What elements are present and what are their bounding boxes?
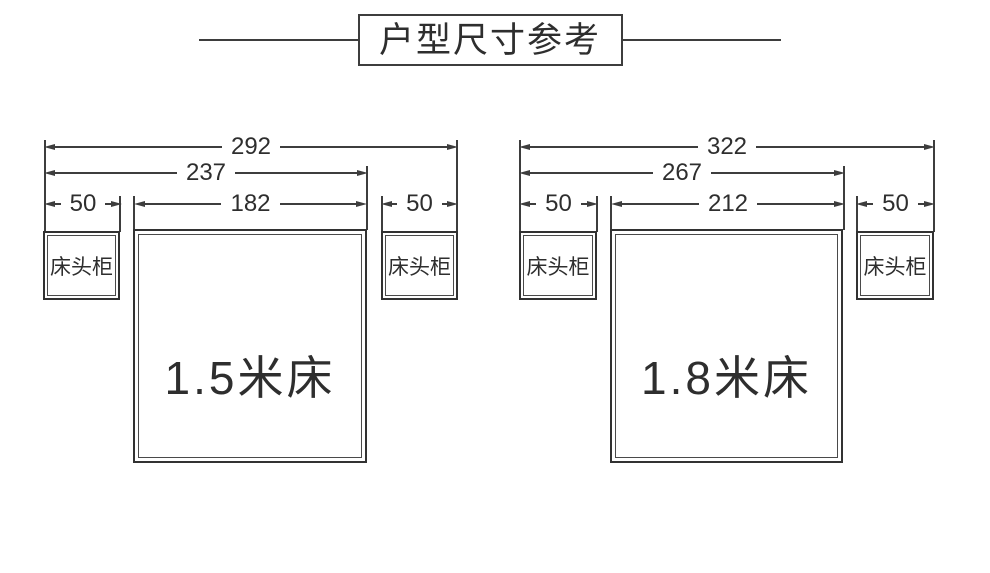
dim-value: 237 [177, 161, 235, 185]
arrow-left-icon [134, 201, 145, 207]
dim-line [530, 172, 653, 174]
dim-line [757, 203, 834, 205]
arrow-left-icon [519, 144, 530, 150]
dim-value: 267 [653, 161, 711, 185]
page-title: 户型尺寸参考 [379, 23, 601, 58]
nightstand-label: 床头柜 [388, 251, 451, 281]
bed-box: 1.8米床 [610, 229, 843, 463]
dim-value: 292 [222, 135, 280, 159]
dim-value: 212 [699, 192, 757, 216]
arrow-left-icon [44, 170, 55, 176]
dim-value: 50 [61, 192, 106, 216]
arrow-right-icon [924, 201, 935, 207]
dim-line [756, 146, 924, 148]
arrow-left-icon [44, 201, 55, 207]
dim-line [280, 146, 447, 148]
nightstand-right: 床头柜 [381, 231, 458, 300]
arrow-left-icon [44, 144, 55, 150]
dim-line [280, 203, 356, 205]
floorplan-size-reference: 户型尺寸参考 292 237 50 [0, 0, 990, 573]
arrow-left-icon [519, 170, 530, 176]
arrow-right-icon [447, 144, 458, 150]
arrow-right-icon [111, 201, 122, 207]
dim-nightstand-right: 50 [856, 189, 935, 219]
nightstand-right: 床头柜 [856, 231, 934, 300]
dim-line [145, 203, 221, 205]
dim-nightstand-right: 50 [381, 189, 458, 219]
dim-bed-with-left-nightstand: 237 [44, 158, 368, 188]
arrow-right-icon [356, 201, 367, 207]
bed-box: 1.5米床 [133, 229, 367, 463]
dim-bed-width: 182 [134, 189, 367, 219]
divider-left [199, 39, 358, 41]
nightstand-inner: 床头柜 [860, 235, 930, 296]
dim-line [711, 172, 834, 174]
dim-nightstand-left: 50 [44, 189, 122, 219]
bed-inner: 1.8米床 [615, 234, 838, 458]
dim-nightstand-left: 50 [519, 189, 598, 219]
nightstand-label: 床头柜 [527, 251, 590, 281]
dim-value: 50 [873, 192, 918, 216]
dim-line [235, 172, 357, 174]
dim-value: 50 [397, 192, 442, 216]
nightstand-inner: 床头柜 [47, 235, 116, 296]
dim-line [55, 172, 177, 174]
bed-label: 1.5米床 [165, 342, 336, 408]
dim-value: 322 [698, 135, 756, 159]
divider-right [623, 39, 782, 41]
arrow-left-icon [856, 201, 867, 207]
dim-line [530, 146, 698, 148]
nightstand-label: 床头柜 [864, 251, 927, 281]
arrow-left-icon [611, 201, 622, 207]
arrow-left-icon [381, 201, 392, 207]
arrow-left-icon [519, 201, 530, 207]
dim-bed-with-left-nightstand: 267 [519, 158, 845, 188]
title-banner: 户型尺寸参考 [199, 14, 781, 66]
arrow-right-icon [447, 201, 458, 207]
nightstand-label: 床头柜 [50, 251, 113, 281]
dim-value: 182 [221, 192, 279, 216]
dim-value: 50 [536, 192, 581, 216]
dim-line [55, 146, 222, 148]
nightstand-left: 床头柜 [43, 231, 120, 300]
arrow-right-icon [834, 201, 845, 207]
arrow-right-icon [924, 144, 935, 150]
arrow-right-icon [357, 170, 368, 176]
dim-bed-width: 212 [611, 189, 845, 219]
nightstand-inner: 床头柜 [385, 235, 454, 296]
arrow-right-icon [834, 170, 845, 176]
page-title-box: 户型尺寸参考 [358, 14, 623, 66]
dim-line [622, 203, 699, 205]
bed-label: 1.8米床 [641, 342, 812, 408]
arrow-right-icon [587, 201, 598, 207]
bed-inner: 1.5米床 [138, 234, 362, 458]
nightstand-inner: 床头柜 [523, 235, 593, 296]
nightstand-left: 床头柜 [519, 231, 597, 300]
